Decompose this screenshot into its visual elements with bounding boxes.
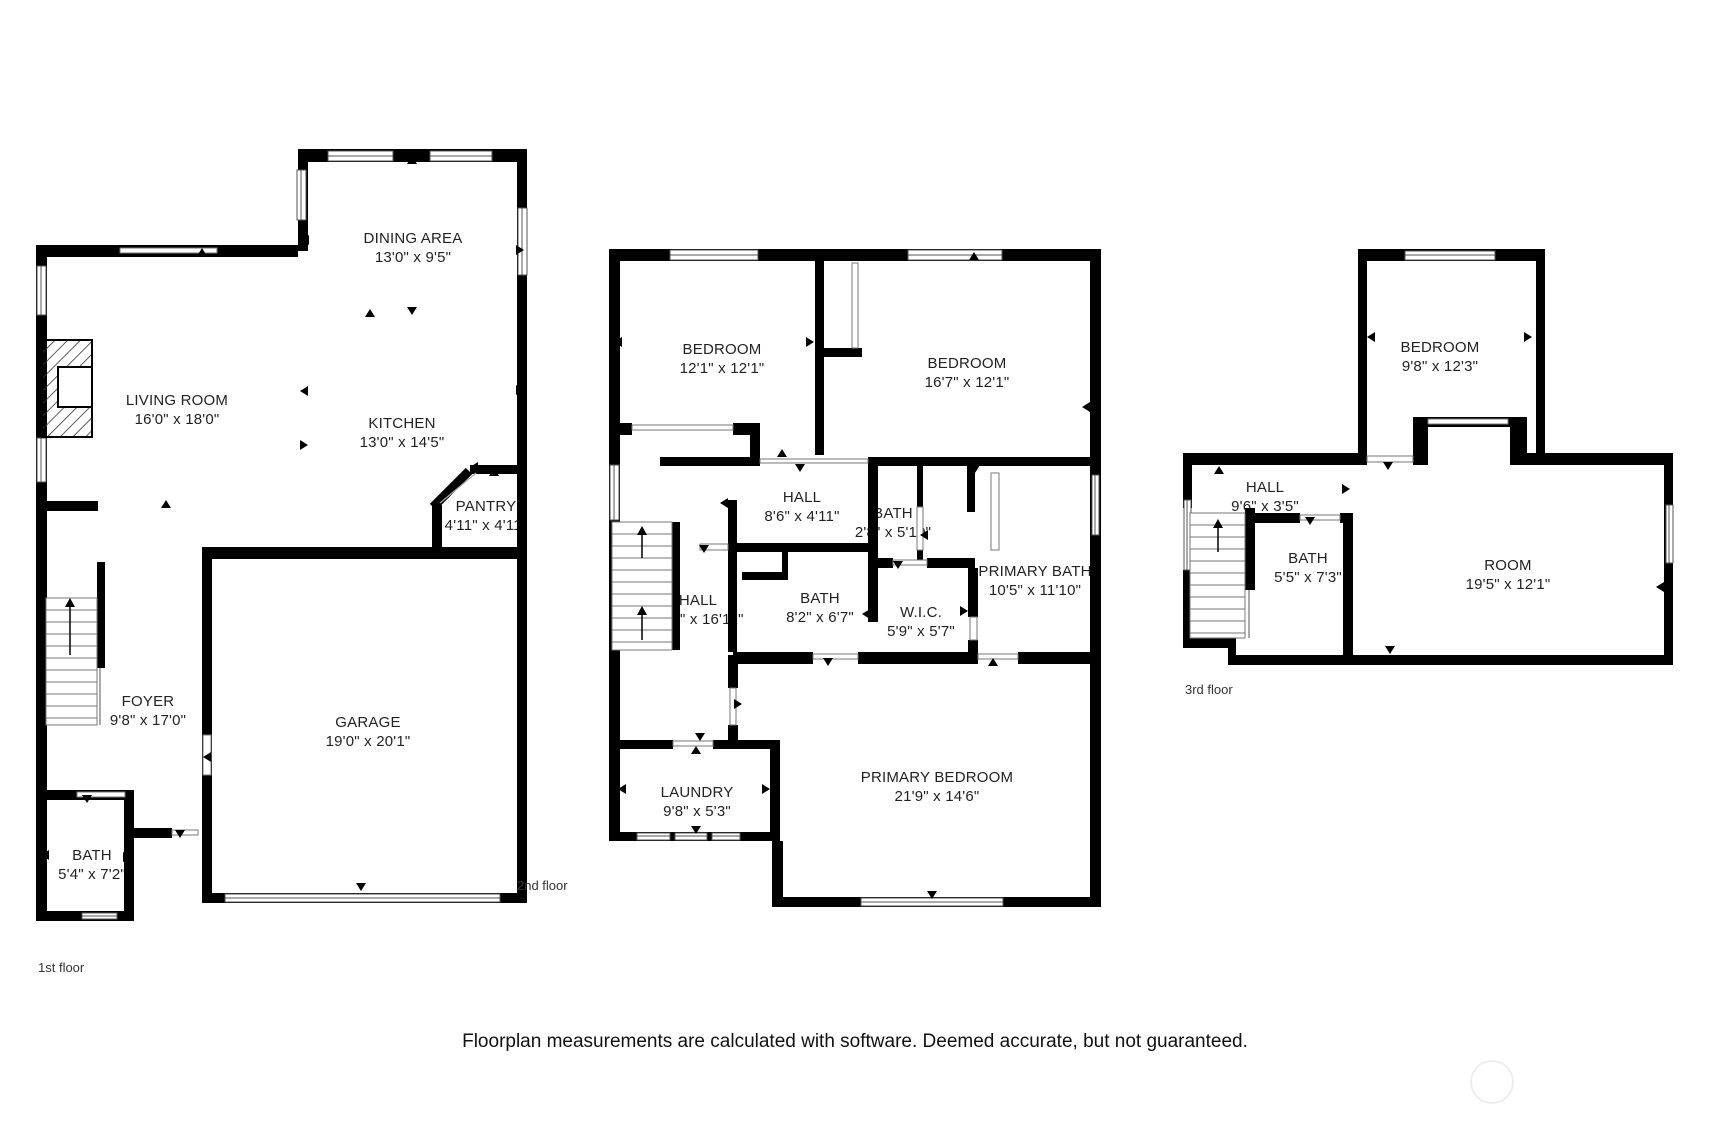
floor-label-1st: 1st floor bbox=[38, 960, 84, 975]
room-dims: 16'7" x 12'1" bbox=[925, 373, 1010, 392]
room-name: ROOM bbox=[1466, 556, 1551, 575]
room-name: LAUNDRY bbox=[661, 783, 734, 802]
room-label-primary-bath: PRIMARY BATH 10'5" x 11'10" bbox=[978, 562, 1091, 600]
room-label-hall-3f: HALL 9'6" x 3'5" bbox=[1231, 478, 1299, 516]
room-dims: 9'8" x 5'3" bbox=[661, 802, 734, 821]
room-name: PRIMARY BATH bbox=[978, 562, 1091, 581]
room-name: BATH bbox=[58, 846, 126, 865]
floor-label-2nd: 2nd floor bbox=[517, 878, 568, 893]
room-name: BEDROOM bbox=[925, 354, 1010, 373]
room-label-pantry: PANTRY 4'11" x 4'11" bbox=[445, 497, 528, 535]
room-dims: 2'8" x 5'10" bbox=[855, 523, 931, 542]
room-label-bedroom-1: BEDROOM 12'1" x 12'1" bbox=[680, 340, 765, 378]
room-label-room-3f: ROOM 19'5" x 12'1" bbox=[1466, 556, 1551, 594]
room-name: BATH bbox=[855, 504, 931, 523]
room-name: GARAGE bbox=[326, 713, 411, 732]
floor3-door-openings bbox=[1300, 419, 1508, 520]
room-dims: 8'6" x 4'11" bbox=[764, 507, 839, 526]
room-dims: 9'8" x 17'0" bbox=[110, 711, 186, 730]
room-dims: 5'5" x 7'3" bbox=[1274, 568, 1342, 587]
room-dims: 19'5" x 12'1" bbox=[1466, 575, 1551, 594]
room-name: HALL bbox=[652, 591, 743, 610]
floorplan-drawing bbox=[0, 0, 1710, 1121]
room-label-kitchen: KITCHEN 13'0" x 14'5" bbox=[360, 414, 445, 452]
floorplan-canvas: DINING AREA 13'0" x 9'5" LIVING ROOM 16'… bbox=[0, 0, 1710, 1121]
floor3-walls bbox=[1183, 249, 1673, 665]
room-name: FOYER bbox=[110, 692, 186, 711]
room-label-bath-1f: BATH 5'4" x 7'2" bbox=[58, 846, 126, 884]
room-name: BATH bbox=[786, 589, 854, 608]
room-label-hall-upper: HALL 8'6" x 4'11" bbox=[764, 488, 839, 526]
fireplace-icon bbox=[42, 340, 92, 437]
room-label-foyer: FOYER 9'8" x 17'0" bbox=[110, 692, 186, 730]
room-name: DINING AREA bbox=[364, 229, 463, 248]
room-label-primary-bedroom: PRIMARY BEDROOM 21'9" x 14'6" bbox=[861, 768, 1013, 806]
room-dims: 6'11" x 16'11" bbox=[652, 610, 743, 629]
room-label-living-room: LIVING ROOM 16'0" x 18'0" bbox=[126, 391, 228, 429]
room-name: LIVING ROOM bbox=[126, 391, 228, 410]
room-label-laundry: LAUNDRY 9'8" x 5'3" bbox=[661, 783, 734, 821]
room-label-wic: W.I.C. 5'9" x 5'7" bbox=[887, 603, 955, 641]
room-name: PRIMARY BEDROOM bbox=[861, 768, 1013, 787]
room-label-garage: GARAGE 19'0" x 20'1" bbox=[326, 713, 411, 751]
room-name: BATH bbox=[1274, 549, 1342, 568]
floor3-plan bbox=[1183, 249, 1673, 665]
room-dims: 21'9" x 14'6" bbox=[861, 787, 1013, 806]
room-label-hall-stair: HALL 6'11" x 16'11" bbox=[652, 591, 743, 629]
room-name: HALL bbox=[1231, 478, 1299, 497]
room-dims: 13'0" x 14'5" bbox=[360, 433, 445, 452]
floor-label-3rd: 3rd floor bbox=[1185, 682, 1233, 697]
room-label-bath-small: BATH 2'8" x 5'10" bbox=[855, 504, 931, 542]
room-label-bath-3f: BATH 5'5" x 7'3" bbox=[1274, 549, 1342, 587]
floor1-door-openings bbox=[77, 248, 217, 835]
disclaimer-text: Floorplan measurements are calculated wi… bbox=[0, 1031, 1710, 1053]
room-dims: 13'0" x 9'5" bbox=[364, 248, 463, 267]
room-label-dining-area: DINING AREA 13'0" x 9'5" bbox=[364, 229, 463, 267]
floor3-windows bbox=[1184, 251, 1673, 570]
floor1-stairs-icon bbox=[46, 598, 97, 725]
room-name: BEDROOM bbox=[1401, 338, 1480, 357]
floor3-stairs-icon bbox=[1190, 513, 1245, 638]
floor2-stairs-icon bbox=[612, 522, 672, 650]
room-label-bath-2f: BATH 8'2" x 6'7" bbox=[786, 589, 854, 627]
room-dims: 9'8" x 12'3" bbox=[1401, 357, 1480, 376]
garage-door bbox=[225, 894, 500, 902]
floor1-window-midlines bbox=[41, 156, 522, 916]
room-name: KITCHEN bbox=[360, 414, 445, 433]
room-dims: 5'4" x 7'2" bbox=[58, 865, 126, 884]
room-dims: 10'5" x 11'10" bbox=[978, 581, 1091, 600]
watermark-circle bbox=[1471, 1061, 1513, 1103]
room-dims: 4'11" x 4'11" bbox=[445, 516, 528, 535]
room-dims: 19'0" x 20'1" bbox=[326, 732, 411, 751]
room-dims: 8'2" x 6'7" bbox=[786, 608, 854, 627]
floor3-window-midlines bbox=[1187, 255, 1669, 638]
room-dims: 16'0" x 18'0" bbox=[126, 410, 228, 429]
room-label-bedroom-3f: BEDROOM 9'8" x 12'3" bbox=[1401, 338, 1480, 376]
room-label-bedroom-2: BEDROOM 16'7" x 12'1" bbox=[925, 354, 1010, 392]
room-name: HALL bbox=[764, 488, 839, 507]
room-dims: 12'1" x 12'1" bbox=[680, 359, 765, 378]
room-name: PANTRY bbox=[445, 497, 528, 516]
room-name: BEDROOM bbox=[680, 340, 765, 359]
room-dims: 5'9" x 5'7" bbox=[887, 622, 955, 641]
room-name: W.I.C. bbox=[887, 603, 955, 622]
room-dims: 9'6" x 3'5" bbox=[1231, 497, 1299, 516]
